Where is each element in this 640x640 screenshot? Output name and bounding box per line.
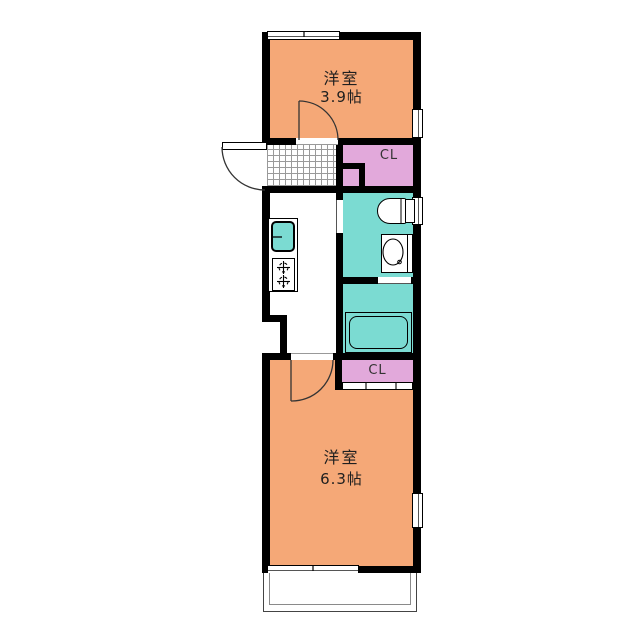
top-room-side-window [412,109,423,138]
toilet-bowl [377,198,407,224]
wall [335,353,342,390]
wall [262,315,287,322]
wall [262,353,270,573]
top-room-door-opening [296,138,338,145]
toilet-tank [405,199,415,223]
washbasin-cabinet [381,234,408,273]
wall [262,186,421,193]
top-room-name: 洋室 [270,70,413,88]
kitchen-sink [271,221,295,252]
closet-sliding-door [342,382,413,390]
bottom-room-size: 6.3帖 [270,471,413,488]
top-window [267,31,340,40]
bottom-room-door-opening [291,353,333,360]
bathtub [345,312,412,353]
bottom-closet-label: CL [342,364,413,379]
entrance-door-leaf [222,142,267,150]
bathroom-door-opening [378,277,411,284]
entrance-door-arc [222,147,265,190]
bottom-room-name: 洋室 [270,449,413,467]
washroom-sliding-door [336,200,343,233]
washbasin-side-counter [407,234,413,273]
top-closet-label: CL [365,149,413,164]
bottom-room-side-window [412,493,423,528]
genkan-entry-tile [267,143,336,186]
wall [262,32,270,145]
balcony-inner-rail [269,573,411,605]
top-room-size: 3.9帖 [270,89,413,106]
floor-plan: 洋室 3.9帖 CL CL 洋室 6.3帖 [0,0,640,640]
gas-stove [272,258,295,291]
